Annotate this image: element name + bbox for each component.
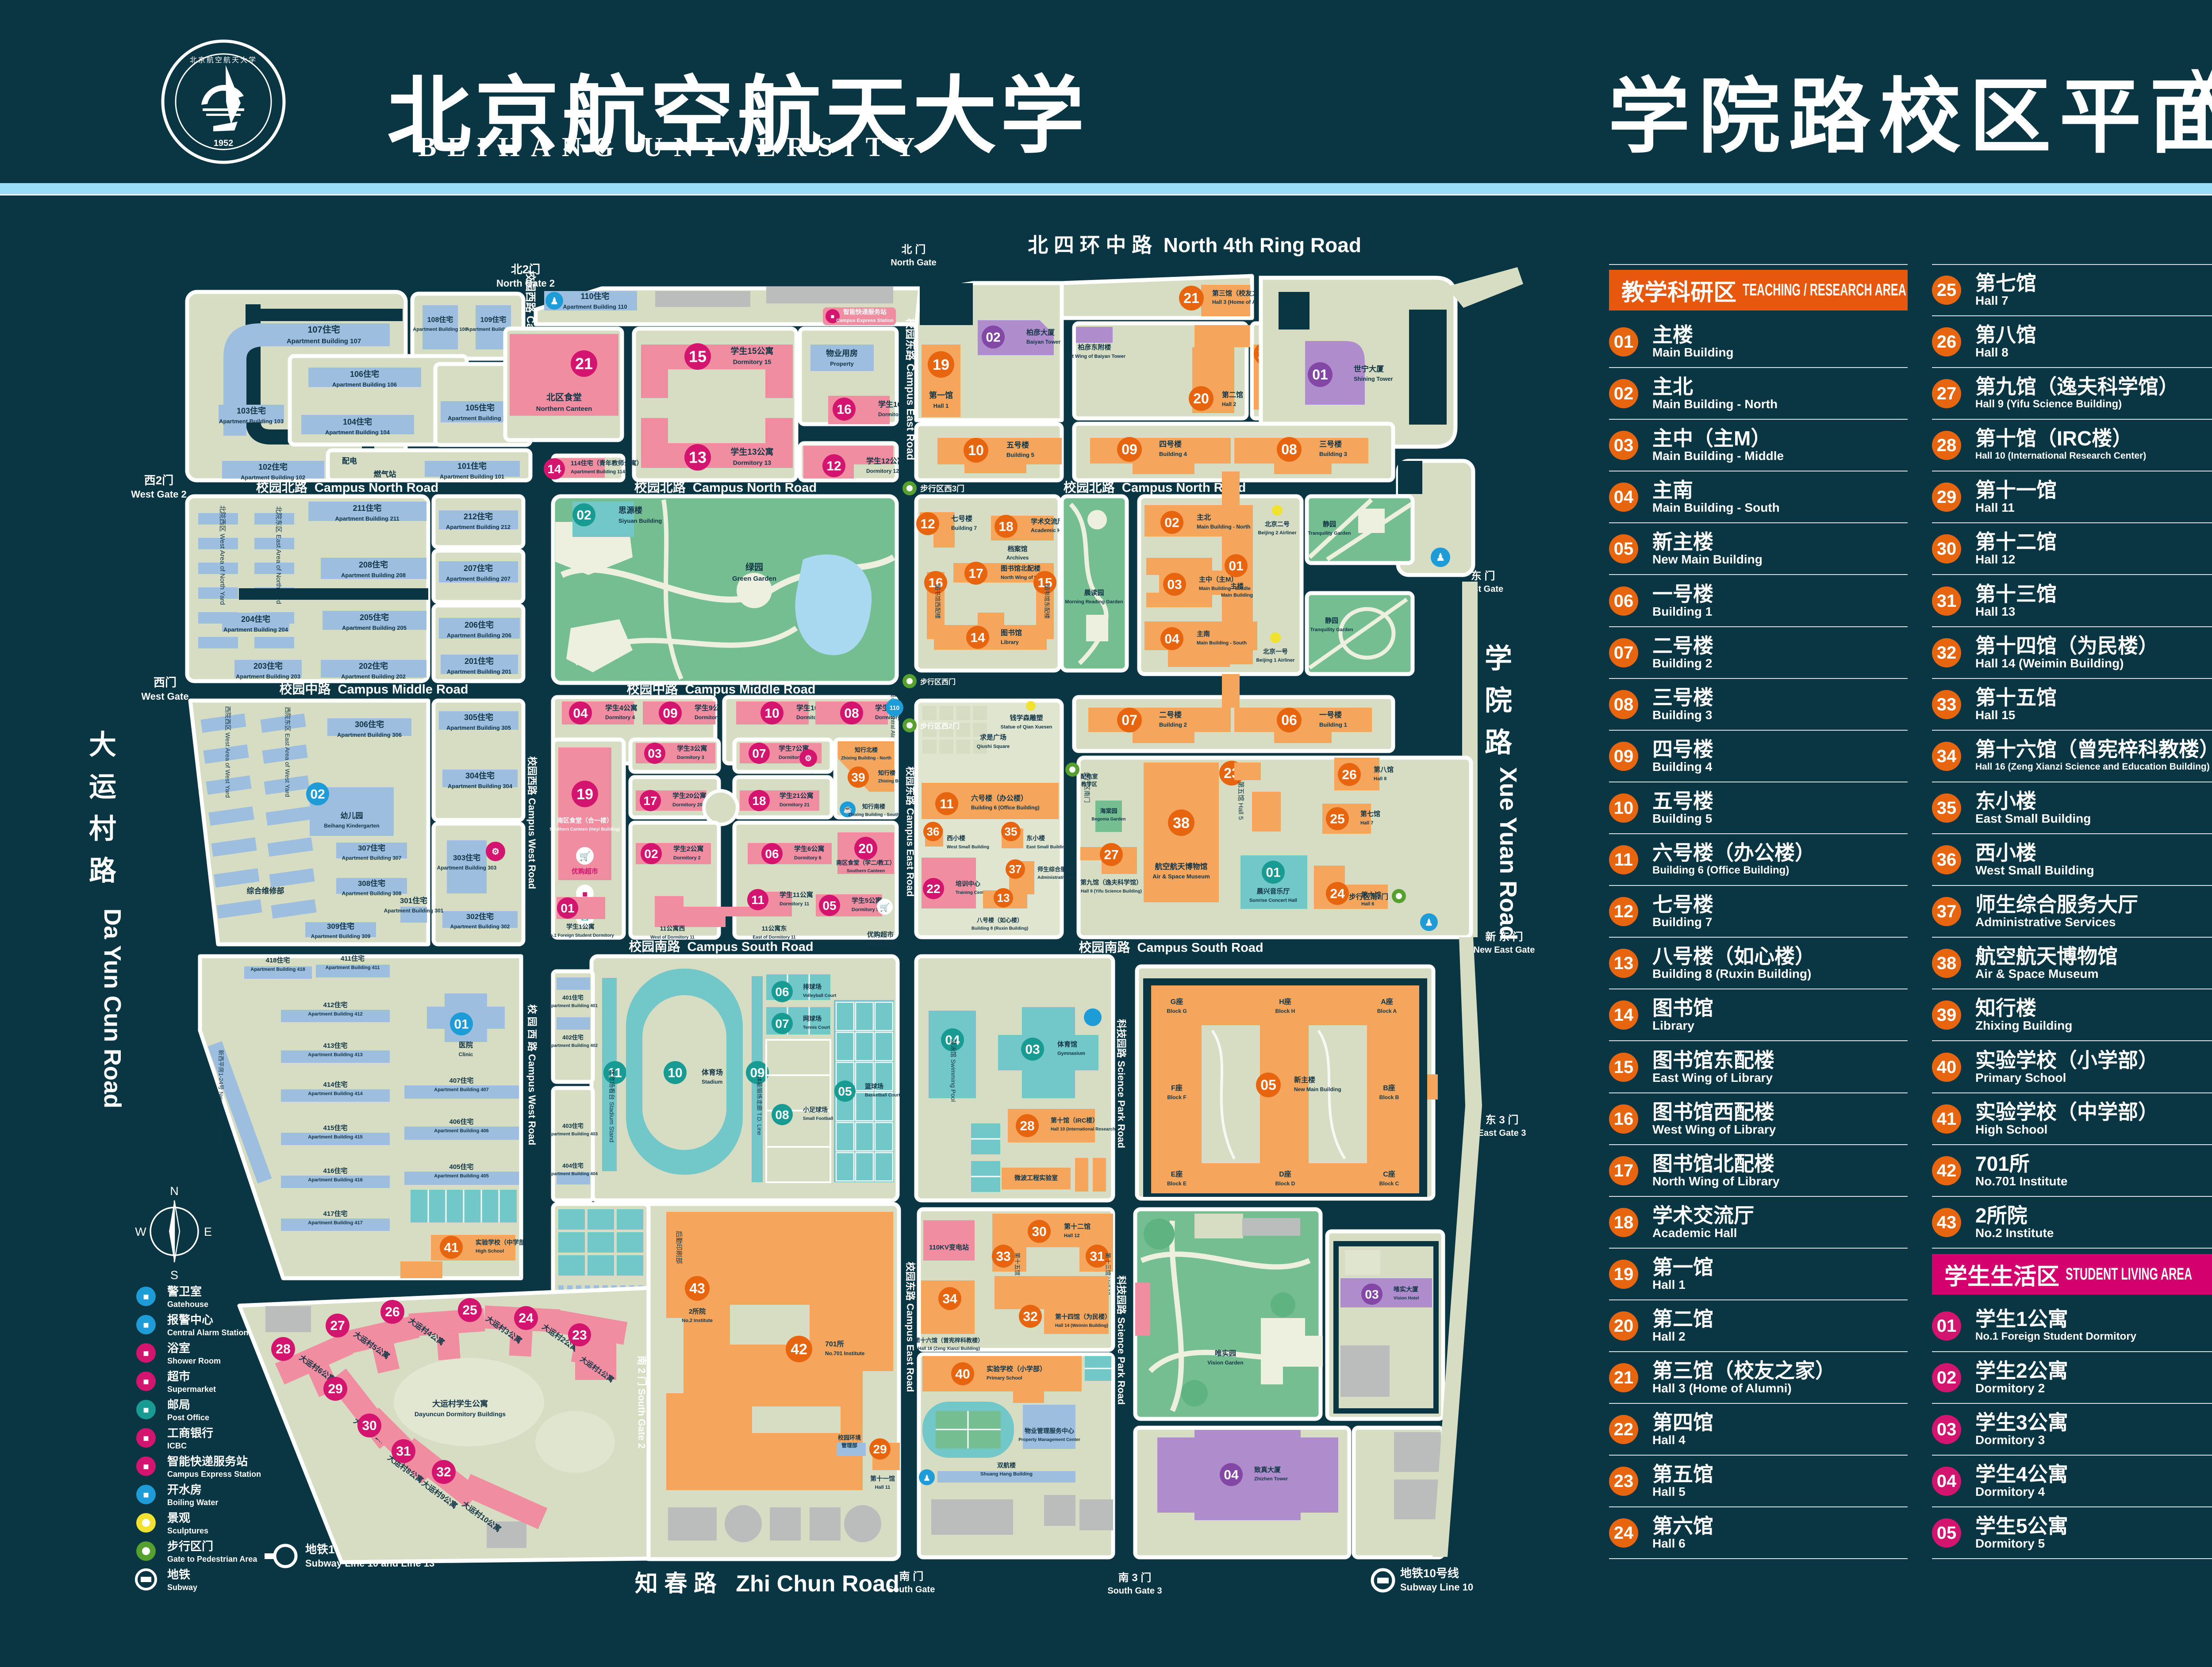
svg-text:校园东路 Campus East Road: 校园东路 Campus East Road (905, 766, 916, 897)
svg-text:C座: C座 (1383, 1170, 1395, 1178)
svg-text:Supermarket: Supermarket (167, 1385, 216, 1394)
svg-text:村: 村 (89, 814, 116, 844)
svg-text:Apartment Building 412: Apartment Building 412 (308, 1012, 362, 1017)
svg-text:Apartment Building 114: Apartment Building 114 (571, 469, 626, 475)
svg-text:Block C: Block C (1379, 1180, 1399, 1187)
svg-text:20: 20 (858, 842, 873, 856)
svg-text:Building 8 (Ruxin Building): Building 8 (Ruxin Building) (972, 926, 1028, 931)
svg-text:西门: 西门 (154, 676, 177, 689)
svg-text:■: ■ (143, 1348, 149, 1359)
svg-text:22: 22 (926, 882, 940, 896)
svg-text:Apartment Building 212: Apartment Building 212 (446, 524, 511, 530)
svg-text:Beijing 1 Airliner: Beijing 1 Airliner (1256, 658, 1295, 663)
svg-text:♟: ♟ (1436, 552, 1445, 563)
svg-text:八号楼（如心楼）: 八号楼（如心楼） (976, 917, 1023, 924)
svg-text:36: 36 (927, 825, 940, 838)
svg-text:步行区门: 步行区门 (167, 1540, 213, 1553)
svg-text:Dormitory 5: Dormitory 5 (852, 907, 879, 912)
svg-text:Apartment Building 303: Apartment Building 303 (437, 865, 497, 871)
svg-text:知 春 路 Zhi Chun Road: 知 春 路 Zhi Chun Road (635, 1571, 899, 1597)
svg-text:31: 31 (1090, 1249, 1104, 1264)
svg-text:12: 12 (826, 459, 841, 474)
svg-text:体育馆: 体育馆 (1057, 1040, 1077, 1048)
svg-text:警卫室: 警卫室 (167, 1285, 202, 1298)
svg-text:西小楼: 西小楼 (947, 835, 965, 842)
svg-text:Volleyball Court: Volleyball Court (803, 993, 837, 998)
svg-text:微波工程实验室: 微波工程实验室 (1014, 1174, 1058, 1181)
svg-text:21: 21 (1183, 290, 1199, 306)
svg-text:Sculptures: Sculptures (167, 1526, 208, 1535)
svg-text:Apartment Building 416: Apartment Building 416 (308, 1177, 362, 1183)
svg-text:学生1公寓: 学生1公寓 (566, 923, 595, 930)
svg-text:12: 12 (920, 517, 935, 532)
svg-text:⚙: ⚙ (805, 754, 812, 763)
svg-text:第九馆（逸夫科学馆）: 第九馆（逸夫科学馆） (1080, 879, 1142, 886)
svg-text:30: 30 (1032, 1225, 1046, 1239)
svg-text:11: 11 (940, 797, 954, 812)
svg-text:知行南楼: 知行南楼 (862, 803, 885, 810)
svg-text:01: 01 (1266, 866, 1280, 880)
svg-text:北 门: 北 门 (902, 243, 926, 256)
svg-text:Southern Canteen (Heyi Buildin: Southern Canteen (Heyi Building) (549, 827, 620, 832)
svg-text:04: 04 (1164, 632, 1179, 647)
svg-text:13: 13 (997, 891, 1010, 904)
svg-text:Sunrise Concert Hall: Sunrise Concert Hall (1249, 898, 1297, 903)
svg-text:Apartment Building 306: Apartment Building 306 (337, 732, 402, 738)
svg-text:01: 01 (1229, 559, 1243, 574)
svg-text:29: 29 (873, 1442, 887, 1456)
svg-text:104住宅: 104住宅 (343, 417, 372, 426)
svg-text:Statue of Qian Xuesen: Statue of Qian Xuesen (1001, 724, 1052, 730)
svg-text:优购超市: 优购超市 (867, 931, 894, 939)
svg-text:Dormitory 20: Dormitory 20 (672, 802, 703, 808)
svg-text:08: 08 (844, 706, 859, 721)
svg-text:Tranquility Garden: Tranquility Garden (1310, 627, 1353, 632)
svg-text:01: 01 (1312, 367, 1328, 383)
svg-text:05: 05 (822, 899, 836, 912)
svg-text:304住宅: 304住宅 (465, 771, 495, 780)
svg-text:28: 28 (276, 1342, 290, 1357)
svg-text:405住宅: 405住宅 (449, 1163, 473, 1171)
svg-text:医院: 医院 (459, 1041, 473, 1049)
svg-text:17: 17 (643, 794, 657, 808)
svg-text:第五馆 Hall 5: 第五馆 Hall 5 (1237, 781, 1245, 820)
svg-text:205住宅: 205住宅 (360, 613, 389, 622)
svg-text:求是广场: 求是广场 (980, 733, 1006, 741)
svg-text:Building 5: Building 5 (1006, 452, 1034, 458)
svg-text:Apartment Building 302: Apartment Building 302 (450, 924, 510, 930)
svg-text:19: 19 (576, 786, 593, 803)
svg-text:Baiyan Tower: Baiyan Tower (1026, 339, 1060, 345)
svg-text:Block E: Block E (1167, 1180, 1187, 1187)
svg-text:37: 37 (1009, 862, 1022, 876)
svg-text:Hall 9 (Yifu Science Building): Hall 9 (Yifu Science Building) (1081, 889, 1142, 894)
svg-text:综合维修部: 综合维修部 (247, 886, 284, 895)
svg-text:校园北路 Campus North Road: 校园北路 Campus North Road (256, 480, 438, 495)
svg-text:02: 02 (1164, 516, 1179, 530)
svg-text:Apartment Building 204: Apartment Building 204 (223, 626, 288, 633)
svg-text:Xue Yuan Road: Xue Yuan Road (1495, 767, 1521, 940)
svg-text:No.701 Institute: No.701 Institute (825, 1350, 865, 1357)
svg-text:201住宅: 201住宅 (465, 656, 494, 666)
svg-text:42: 42 (791, 1341, 807, 1358)
svg-text:学生6公寓: 学生6公寓 (794, 845, 824, 853)
svg-text:South Gate: South Gate (888, 1585, 935, 1594)
svg-text:新主楼: 新主楼 (1294, 1076, 1315, 1084)
svg-text:Apartment Building 401: Apartment Building 401 (548, 1004, 598, 1008)
svg-text:体育场看台 Stadium Stand: 体育场看台 Stadium Stand (608, 1069, 615, 1142)
svg-text:Apartment Building 208: Apartment Building 208 (341, 572, 406, 579)
svg-text:Apartment Building 202: Apartment Building 202 (341, 673, 406, 680)
svg-text:40: 40 (955, 1367, 970, 1382)
svg-text:35: 35 (1005, 825, 1018, 838)
svg-text:实验学校（小学部）: 实验学校（小学部） (987, 1365, 1046, 1373)
svg-text:世宁大厦: 世宁大厦 (1354, 364, 1384, 373)
svg-text:静园: 静园 (1323, 520, 1336, 528)
svg-text:知行楼: 知行楼 (878, 770, 895, 776)
svg-text:Block G: Block G (1167, 1008, 1187, 1014)
svg-text:路: 路 (1485, 728, 1513, 758)
svg-text:Northern Canteen: Northern Canteen (536, 405, 592, 413)
svg-text:01: 01 (561, 901, 574, 915)
svg-text:27: 27 (1104, 848, 1118, 862)
svg-text:航空航天博物馆: 航空航天博物馆 (1155, 862, 1208, 871)
svg-text:14: 14 (970, 631, 985, 645)
svg-text:步行区西门: 步行区西门 (920, 678, 956, 686)
svg-text:306住宅: 306住宅 (355, 720, 384, 729)
svg-text:21: 21 (575, 355, 593, 373)
svg-text:High School: High School (476, 1249, 504, 1254)
svg-text:Campus Express Station: Campus Express Station (167, 1470, 261, 1479)
svg-text:39: 39 (851, 770, 865, 784)
svg-text:综合服务部: 综合服务部 (866, 940, 895, 947)
svg-text:E: E (204, 1225, 212, 1238)
svg-text:三号楼: 三号楼 (1319, 440, 1342, 448)
svg-text:Hall 16 (Zeng Xianzi Building): Hall 16 (Zeng Xianzi Building) (918, 1346, 980, 1351)
svg-text:校园东路 Campus East Road: 校园东路 Campus East Road (904, 318, 917, 460)
svg-text:地铁10号线: 地铁10号线 (1400, 1567, 1459, 1580)
svg-text:03: 03 (648, 747, 661, 760)
svg-text:新西平房1-24号 New West House (1-24: 新西平房1-24号 New West House (1-24) (218, 1050, 224, 1153)
svg-text:Main Building: Main Building (1221, 593, 1253, 598)
svg-text:New Main Building: New Main Building (1294, 1086, 1341, 1092)
svg-text:Tranquility Garden: Tranquility Garden (1308, 531, 1351, 536)
svg-text:七号楼: 七号楼 (951, 514, 972, 523)
svg-text:206住宅: 206住宅 (465, 620, 494, 629)
svg-text:01: 01 (454, 1017, 469, 1032)
svg-text:08: 08 (775, 1108, 789, 1122)
svg-text:25: 25 (1330, 812, 1344, 827)
svg-text:第十馆（IRC楼）: 第十馆（IRC楼） (1051, 1117, 1098, 1124)
svg-text:Basketball Court: Basketball Court (865, 1093, 900, 1098)
svg-text:105住宅: 105住宅 (465, 403, 495, 412)
svg-text:Apartment Building 405: Apartment Building 405 (434, 1173, 488, 1179)
svg-text:406住宅: 406住宅 (449, 1118, 473, 1126)
svg-text:思源楼: 思源楼 (618, 506, 642, 515)
svg-text:303住宅: 303住宅 (453, 853, 480, 862)
svg-text:Apartment Building 411: Apartment Building 411 (326, 965, 380, 970)
svg-text:Block H: Block H (1275, 1008, 1295, 1014)
svg-text:West of Dormitory 11: West of Dormitory 11 (650, 935, 695, 940)
svg-text:Hall 2: Hall 2 (1222, 401, 1236, 407)
svg-text:游泳馆 Swimming Pool: 游泳馆 Swimming Pool (950, 1039, 957, 1102)
svg-text:Block D: Block D (1275, 1180, 1295, 1187)
svg-text:智能快递服务站: 智能快递服务站 (167, 1455, 248, 1468)
svg-text:W: W (135, 1225, 146, 1238)
svg-text:1952: 1952 (214, 138, 234, 148)
svg-text:203住宅: 203住宅 (253, 661, 283, 671)
svg-text:Campus Express Station: Campus Express Station (836, 318, 894, 323)
svg-text:415住宅: 415住宅 (323, 1124, 347, 1132)
svg-text:Building 6 (Office Building): Building 6 (Office Building) (971, 805, 1040, 811)
svg-text:Apartment Building 205: Apartment Building 205 (342, 625, 407, 631)
svg-text:校园南路 Campus South Road: 校园南路 Campus South Road (1079, 940, 1263, 955)
svg-text:2所院: 2所院 (689, 1307, 706, 1315)
svg-text:南 3 门: 南 3 门 (1118, 1571, 1152, 1584)
svg-text:工商银行: 工商银行 (167, 1426, 213, 1440)
svg-text:实验学校（中学部）: 实验学校（中学部） (476, 1239, 531, 1246)
svg-text:West Gate: West Gate (141, 691, 188, 702)
svg-text:07: 07 (1121, 712, 1137, 728)
svg-text:唯实大厦: 唯实大厦 (1394, 1286, 1419, 1293)
svg-text:体育场: 体育场 (702, 1068, 723, 1077)
svg-text:静园: 静园 (1325, 617, 1338, 625)
svg-text:档案馆: 档案馆 (1007, 545, 1027, 553)
svg-text:五号楼: 五号楼 (1006, 441, 1029, 449)
svg-text:■: ■ (143, 1404, 149, 1415)
svg-text:幼儿园: 幼儿园 (341, 811, 363, 820)
svg-text:West Gate 2: West Gate 2 (131, 489, 187, 500)
svg-text:27: 27 (330, 1318, 345, 1333)
svg-text:101住宅: 101住宅 (457, 461, 487, 471)
svg-text:308住宅: 308住宅 (358, 879, 385, 888)
svg-text:19: 19 (933, 356, 949, 373)
svg-text:Apartment Building 413: Apartment Building 413 (308, 1052, 362, 1058)
svg-text:Dormitory 6: Dormitory 6 (794, 855, 822, 861)
svg-text:东 门: 东 门 (1471, 570, 1495, 582)
svg-text:西院西区 West Area of West Yard: 西院西区 West Area of West Yard (224, 706, 231, 797)
svg-text:14: 14 (547, 462, 561, 476)
svg-text:N: N (170, 1184, 179, 1198)
svg-text:♟: ♟ (923, 1474, 930, 1483)
svg-text:唯实园: 唯实园 (1215, 1349, 1236, 1357)
svg-text:301住宅: 301住宅 (400, 896, 427, 905)
svg-text:Da Yun Cun Road: Da Yun Cun Road (99, 908, 126, 1108)
svg-text:Dormitory 13: Dormitory 13 (733, 459, 772, 466)
svg-text:步行区南门: 步行区南门 (1083, 772, 1091, 803)
svg-text:Apartment Building 207: Apartment Building 207 (446, 575, 511, 582)
svg-text:学生5公寓: 学生5公寓 (852, 897, 882, 904)
svg-text:Apartment Building 110: Apartment Building 110 (563, 303, 627, 310)
svg-text:大运村学生公寓: 大运村学生公寓 (432, 1399, 488, 1408)
svg-text:师生综合服务大厅: 师生综合服务大厅 (1037, 866, 1083, 873)
svg-text:11公寓西: 11公寓西 (660, 925, 685, 932)
svg-text:学生3公寓: 学生3公寓 (677, 744, 707, 752)
svg-text:10: 10 (764, 706, 779, 721)
svg-text:102住宅: 102住宅 (258, 462, 288, 471)
svg-text:大: 大 (89, 730, 116, 760)
svg-text:211住宅: 211住宅 (353, 503, 381, 513)
svg-text:■: ■ (143, 1376, 149, 1387)
svg-text:■: ■ (143, 1291, 149, 1302)
svg-text:No.1 Foreign Student Dormitory: No.1 Foreign Student Dormitory (547, 933, 614, 938)
svg-text:Property: Property (830, 360, 854, 367)
svg-text:Zhixing Building - South: Zhixing Building - South (848, 812, 899, 817)
svg-text:204住宅: 204住宅 (241, 614, 270, 624)
svg-text:Apartment Building 103: Apartment Building 103 (219, 418, 284, 425)
svg-text:412住宅: 412住宅 (323, 1001, 347, 1009)
svg-text:302住宅: 302住宅 (466, 912, 494, 921)
svg-text:第十四馆（为民楼）: 第十四馆（为民楼） (1055, 1313, 1111, 1320)
svg-text:Air & Space Museum: Air & Space Museum (1152, 873, 1210, 880)
svg-text:B座: B座 (1383, 1084, 1395, 1092)
svg-text:Apartment Building 107: Apartment Building 107 (287, 337, 361, 345)
svg-text:08: 08 (1281, 441, 1297, 457)
svg-text:Apartment Building 206: Apartment Building 206 (447, 632, 511, 639)
svg-text:科技园路 Science Park Road: 科技园路 Science Park Road (1116, 1019, 1127, 1148)
svg-text:18: 18 (998, 520, 1013, 534)
svg-text:Main Building - North: Main Building - North (1197, 524, 1250, 530)
svg-text:417住宅: 417住宅 (323, 1210, 347, 1218)
svg-text:02: 02 (576, 508, 591, 523)
svg-text:双航楼: 双航楼 (997, 1462, 1016, 1469)
svg-text:校园南路 Campus South Road: 校园南路 Campus South Road (629, 939, 813, 954)
svg-text:09: 09 (1121, 441, 1137, 457)
svg-text:307住宅: 307住宅 (358, 843, 385, 852)
svg-text:Building 7: Building 7 (951, 525, 977, 531)
svg-text:第二馆: 第二馆 (1222, 391, 1243, 399)
svg-text:Apartment Building 108: Apartment Building 108 (413, 327, 467, 332)
svg-text:西2门: 西2门 (144, 474, 173, 487)
svg-text:05: 05 (1260, 1077, 1276, 1093)
svg-text:20: 20 (1193, 391, 1209, 406)
svg-text:Beijing 2 Airliner: Beijing 2 Airliner (1258, 530, 1297, 536)
svg-text:202住宅: 202住宅 (359, 661, 388, 671)
svg-text:Gate to Pedestrian Area: Gate to Pedestrian Area (167, 1555, 257, 1564)
svg-text:路: 路 (89, 856, 117, 886)
svg-text:Apartment Building 106: Apartment Building 106 (332, 381, 397, 388)
svg-text:Post Office: Post Office (167, 1413, 209, 1422)
svg-text:东 3 门: 东 3 门 (1486, 1114, 1519, 1126)
svg-text:晨兴音乐厅: 晨兴音乐厅 (1256, 887, 1290, 895)
svg-text:晨读园: 晨读园 (1084, 589, 1104, 597)
svg-text:402住宅: 402住宅 (562, 1034, 584, 1041)
svg-text:East of Dormitory 11: East of Dormitory 11 (753, 935, 796, 940)
svg-text:■: ■ (143, 1433, 149, 1444)
svg-text:物业用房: 物业用房 (826, 349, 858, 358)
svg-text:校园西路 Campus West Road: 校园西路 Campus West Road (526, 756, 538, 889)
svg-text:28: 28 (1020, 1119, 1034, 1134)
svg-text:东小楼: 东小楼 (1026, 835, 1045, 842)
svg-text:108住宅: 108住宅 (427, 315, 453, 324)
svg-text:414住宅: 414住宅 (323, 1081, 347, 1088)
svg-text:32: 32 (1023, 1310, 1037, 1324)
svg-text:北京航空航天大学: 北京航空航天大学 (190, 56, 257, 64)
svg-text:邮局: 邮局 (167, 1398, 190, 1411)
svg-text:32: 32 (436, 1465, 451, 1479)
svg-text:学生12公寓: 学生12公寓 (866, 456, 905, 465)
svg-text:图书馆西配楼: 图书馆西配楼 (934, 584, 941, 619)
svg-text:Apartment Building 414: Apartment Building 414 (308, 1091, 363, 1096)
svg-text:绿园: 绿园 (745, 562, 763, 572)
svg-text:ICBC: ICBC (167, 1441, 187, 1450)
svg-text:后勤印刷部: 后勤印刷部 (675, 1230, 683, 1264)
svg-text:Main Building - South: Main Building - South (1197, 640, 1247, 646)
svg-text:East Wing of Baiyan Tower: East Wing of Baiyan Tower (1064, 354, 1126, 359)
svg-text:New East Gate: New East Gate (1474, 945, 1535, 955)
svg-text:燃气站: 燃气站 (374, 470, 396, 479)
svg-text:No.2 Institute: No.2 Institute (682, 1318, 713, 1323)
svg-text:二号楼: 二号楼 (1159, 710, 1182, 719)
svg-text:Apartment Building 407: Apartment Building 407 (434, 1087, 488, 1092)
svg-text:D座: D座 (1279, 1170, 1291, 1178)
svg-text:305住宅: 305住宅 (464, 713, 493, 722)
svg-text:小足球场: 小足球场 (803, 1106, 828, 1113)
svg-text:309住宅: 309住宅 (327, 922, 354, 931)
svg-text:Subway: Subway (167, 1583, 197, 1592)
svg-text:Green Garden: Green Garden (732, 575, 776, 582)
svg-text:Gymnasium: Gymnasium (1057, 1051, 1085, 1056)
svg-text:13: 13 (689, 448, 707, 467)
svg-text:South Gate 3: South Gate 3 (1107, 1586, 1162, 1596)
svg-text:Gatehouse: Gatehouse (167, 1300, 208, 1309)
svg-text:Dormitory 2: Dormitory 2 (673, 855, 701, 861)
svg-text:Apartment Building 307: Apartment Building 307 (342, 855, 402, 861)
svg-text:物业管理服务中心: 物业管理服务中心 (1025, 1427, 1074, 1434)
svg-text:北京二号: 北京二号 (1265, 521, 1290, 528)
svg-text:Hall 1: Hall 1 (933, 402, 949, 409)
svg-text:03: 03 (1167, 578, 1182, 592)
svg-text:404住宅: 404住宅 (562, 1162, 584, 1169)
svg-text:Hall 12: Hall 12 (1064, 1233, 1079, 1238)
svg-text:第十一馆: 第十一馆 (870, 1475, 895, 1482)
svg-text:403住宅: 403住宅 (562, 1123, 584, 1129)
svg-text:校园中路 Campus Middle Road: 校园中路 Campus Middle Road (280, 682, 469, 697)
svg-text:02: 02 (986, 330, 1000, 345)
svg-text:柏彦东附楼: 柏彦东附楼 (1078, 343, 1111, 351)
svg-text:16: 16 (837, 402, 851, 417)
svg-text:校园环境: 校园环境 (838, 1434, 861, 1441)
svg-text:Hall 14 (Weimin Building): Hall 14 (Weimin Building) (1055, 1323, 1108, 1328)
svg-text:智能快递服务站: 智能快递服务站 (843, 308, 887, 315)
svg-text:优购超市: 优购超市 (572, 867, 598, 875)
svg-text:Begonia Garden: Begonia Garden (1091, 817, 1125, 822)
svg-text:第一馆: 第一馆 (929, 391, 953, 400)
svg-text:钱学森雕塑: 钱学森雕塑 (1010, 714, 1043, 722)
svg-text:110KV变电站: 110KV变电站 (929, 1243, 969, 1251)
svg-text:Apartment Building 404: Apartment Building 404 (548, 1172, 598, 1176)
svg-text:致真大厦: 致真大厦 (1254, 1466, 1281, 1474)
svg-text:Apartment Building 415: Apartment Building 415 (308, 1134, 362, 1140)
svg-text:10: 10 (668, 1066, 682, 1081)
svg-text:Property Management Center: Property Management Center (1018, 1437, 1080, 1442)
svg-text:Apartment Building 308: Apartment Building 308 (342, 890, 402, 897)
svg-text:04: 04 (1224, 1468, 1239, 1483)
svg-text:学术交流厅: 学术交流厅 (1031, 517, 1064, 525)
svg-text:学生20公寓: 学生20公寓 (672, 792, 707, 800)
svg-text:11: 11 (751, 893, 764, 907)
svg-text:Hall 11: Hall 11 (875, 1485, 891, 1490)
svg-text:Hall 8: Hall 8 (1374, 776, 1386, 782)
svg-text:图书馆: 图书馆 (1001, 628, 1022, 637)
svg-text:主楼: 主楼 (1230, 582, 1244, 590)
svg-text:02: 02 (310, 787, 325, 802)
svg-text:北京一号: 北京一号 (1263, 648, 1288, 655)
svg-text:南区食堂（学二/教工）: 南区食堂（学二/教工） (836, 859, 895, 866)
svg-text:E座: E座 (1171, 1170, 1183, 1178)
svg-text:33: 33 (996, 1249, 1010, 1264)
svg-text:401住宅: 401住宅 (562, 994, 584, 1001)
